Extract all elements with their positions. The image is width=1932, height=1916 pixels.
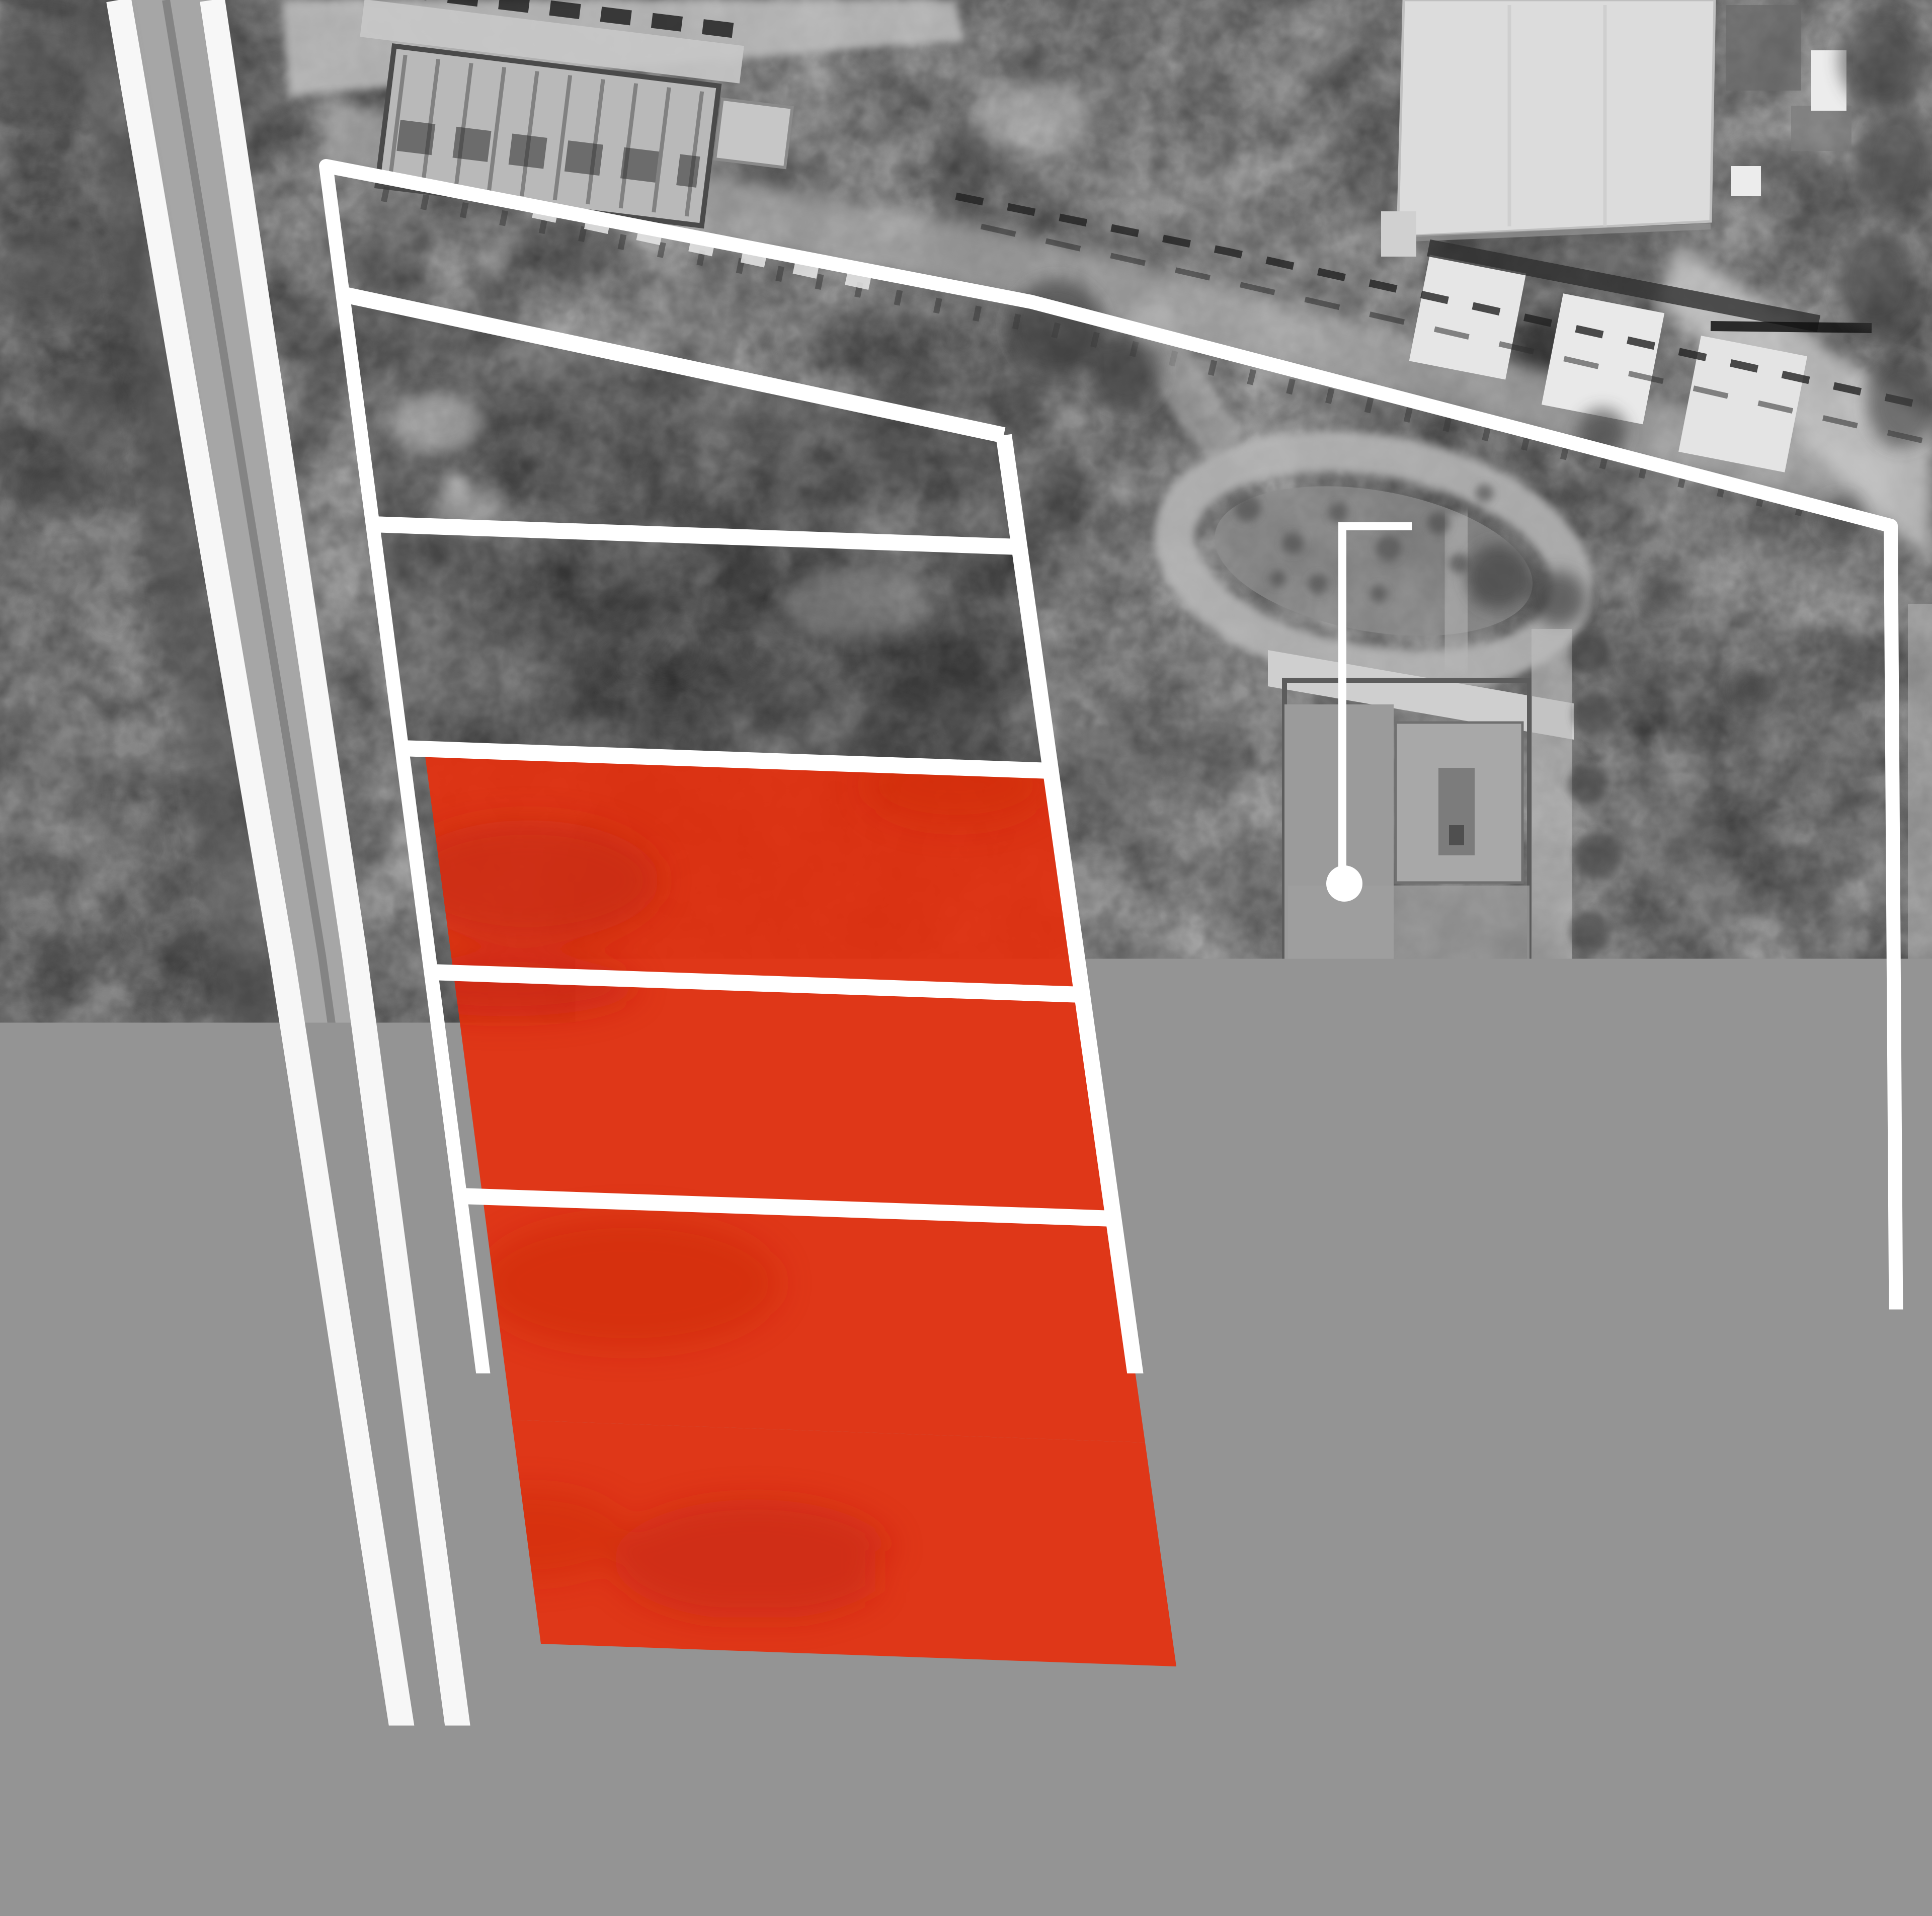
aerial-parcel-map: [0, 0, 1932, 1916]
map-marker-dot[interactable]: [1326, 865, 1362, 902]
trailer-roof: [1731, 166, 1761, 196]
driveway: [1449, 513, 1463, 669]
hedge-row: [1255, 1085, 1548, 1200]
aerial-map-canvas: [0, 0, 1932, 1916]
fenced-court: [1707, 988, 1825, 1174]
yard: [1288, 886, 1530, 1097]
concrete-strip: [1532, 629, 1572, 1233]
east-track: [1908, 604, 1932, 1761]
building-roof-large: [1398, 0, 1715, 236]
building-shadow-line: [1242, 1183, 1504, 1197]
striped-unit: [1282, 1003, 1319, 1100]
south-drive-band: [1316, 1203, 1371, 1862]
